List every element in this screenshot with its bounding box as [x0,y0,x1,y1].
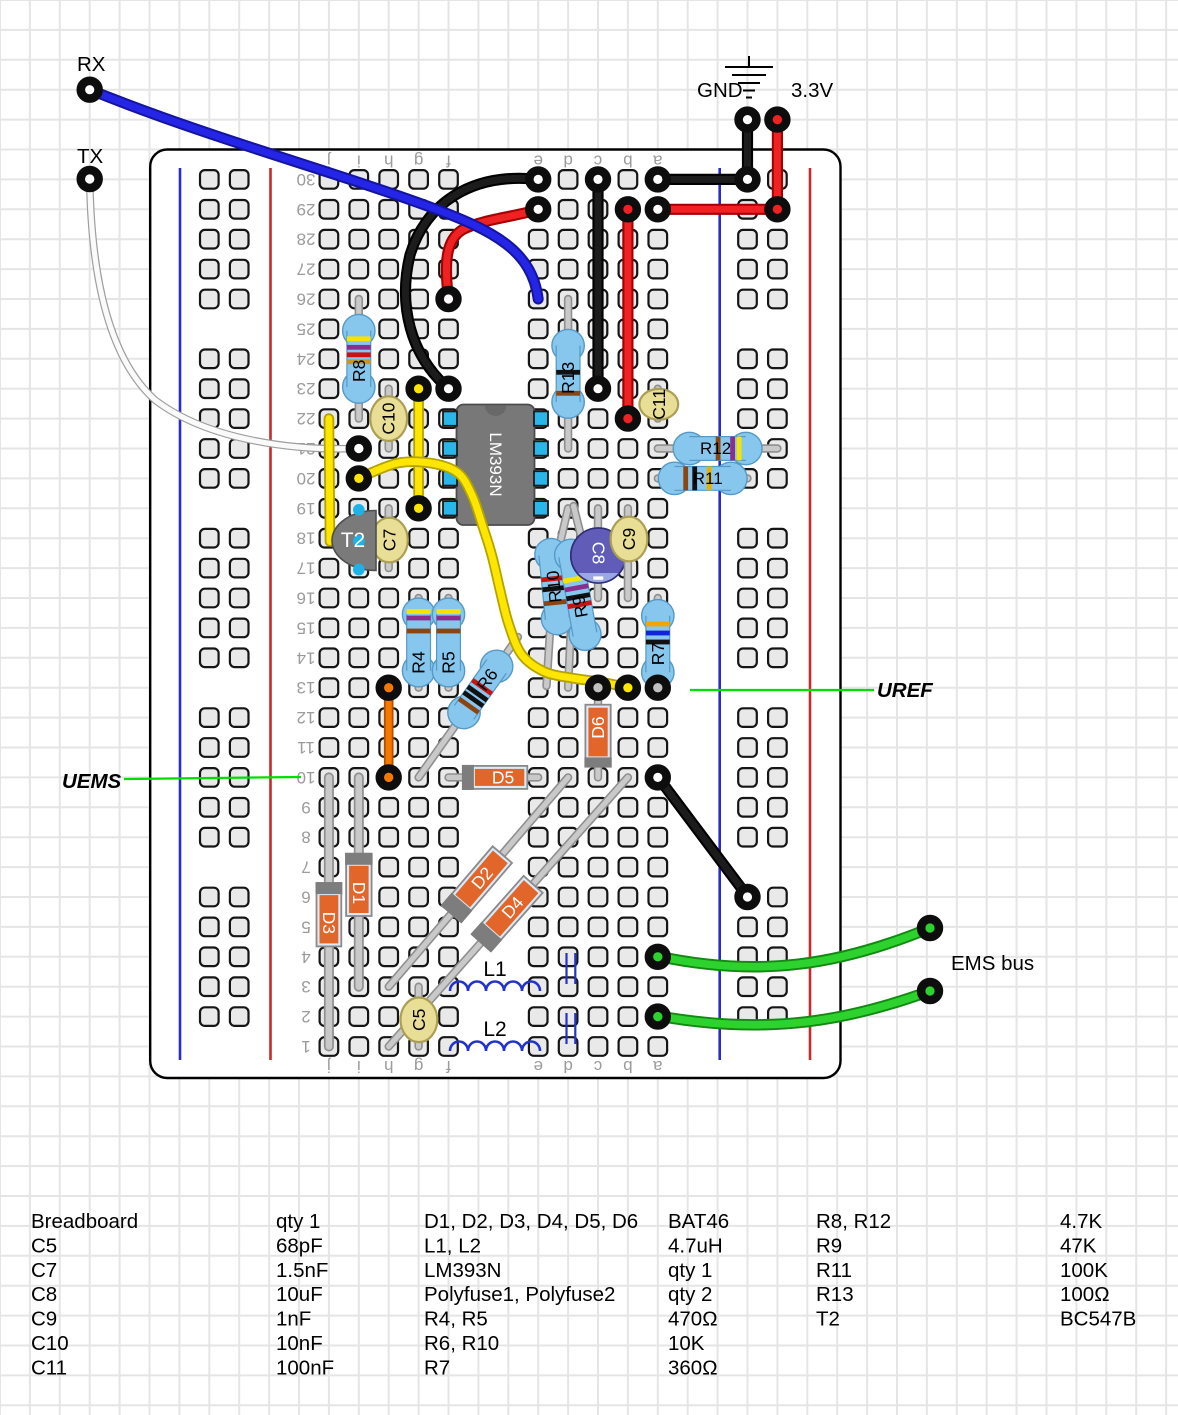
svg-text:L1, L2: L1, L2 [424,1234,481,1257]
svg-text:1nF: 1nF [276,1308,311,1331]
svg-text:R6, R10: R6, R10 [424,1332,499,1355]
svg-text:T2: T2 [816,1308,840,1331]
svg-text:d: d [563,152,572,171]
svg-text:LM393N: LM393N [424,1259,502,1282]
svg-text:10K: 10K [668,1332,705,1355]
svg-text:4.7uH: 4.7uH [668,1234,723,1257]
svg-text:6: 6 [301,888,310,907]
svg-text:20: 20 [297,469,316,488]
svg-text:12: 12 [297,708,316,727]
svg-text:g: g [414,152,423,171]
svg-text:C5: C5 [31,1234,57,1257]
svg-text:R9: R9 [568,594,592,620]
svg-text:BC547B: BC547B [1060,1308,1136,1331]
svg-text:g: g [414,1057,423,1076]
svg-text:23: 23 [297,379,316,398]
svg-text:D6: D6 [588,716,608,738]
svg-text:c: c [593,1057,602,1076]
svg-text:UEMS: UEMS [62,770,122,793]
svg-text:d: d [563,1057,572,1076]
svg-text:L2: L2 [483,1018,506,1041]
svg-text:C7: C7 [379,529,399,551]
svg-text:26: 26 [297,290,316,309]
svg-text:D3: D3 [319,912,339,934]
svg-text:1: 1 [301,1037,310,1056]
svg-text:1.5nF: 1.5nF [276,1259,328,1282]
svg-text:C10: C10 [379,402,399,434]
svg-text:100K: 100K [1060,1259,1108,1282]
svg-text:25: 25 [297,319,316,338]
svg-text:3: 3 [301,977,310,996]
svg-text:100nF: 100nF [276,1356,334,1379]
svg-text:22: 22 [297,409,316,428]
svg-text:C8: C8 [31,1283,57,1306]
svg-text:h: h [384,1057,393,1076]
svg-text:C9: C9 [31,1308,57,1331]
svg-text:b: b [623,152,632,171]
svg-text:4.7K: 4.7K [1060,1210,1102,1233]
svg-text:8: 8 [301,828,310,847]
svg-text:360Ω: 360Ω [668,1356,718,1379]
svg-text:28: 28 [297,230,316,249]
svg-text:UREF: UREF [877,679,933,702]
svg-text:b: b [623,1057,632,1076]
svg-text:R9: R9 [816,1234,842,1257]
svg-text:C11: C11 [649,389,669,420]
svg-text:470Ω: 470Ω [668,1308,718,1331]
svg-text:68pF: 68pF [276,1234,323,1257]
svg-text:BAT46: BAT46 [668,1210,729,1233]
svg-text:TX: TX [77,145,104,168]
svg-text:RX: RX [77,53,106,76]
svg-text:GND: GND [697,79,743,102]
svg-text:D5: D5 [492,767,514,787]
svg-text:13: 13 [297,678,316,697]
svg-text:R11: R11 [816,1259,852,1282]
svg-text:24: 24 [297,349,316,368]
svg-text:C9: C9 [619,528,639,550]
svg-text:Breadboard: Breadboard [31,1210,138,1233]
svg-text:17: 17 [297,559,316,578]
svg-text:2: 2 [301,1007,310,1026]
svg-text:27: 27 [297,260,316,279]
svg-text:10nF: 10nF [276,1332,323,1355]
svg-text:C11: C11 [31,1356,67,1379]
svg-text:Polyfuse1, Polyfuse2: Polyfuse1, Polyfuse2 [424,1283,615,1306]
svg-text:D1, D2, D3, D4, D5, D6: D1, D2, D3, D4, D5, D6 [424,1210,638,1233]
svg-text:qty 1: qty 1 [668,1259,712,1282]
svg-text:R4: R4 [409,651,429,674]
svg-text:11: 11 [297,738,315,757]
svg-text:R4, R5: R4, R5 [424,1308,488,1331]
svg-text:R11: R11 [693,469,723,488]
svg-text:e: e [533,1057,542,1076]
svg-text:R7: R7 [648,643,668,665]
svg-text:R5: R5 [439,651,459,673]
svg-text:10uF: 10uF [276,1283,323,1306]
svg-text:15: 15 [297,618,316,637]
svg-text:a: a [653,1057,663,1076]
svg-text:i: i [357,152,361,171]
svg-text:14: 14 [297,648,316,667]
svg-text:L1: L1 [483,958,506,981]
svg-text:4: 4 [301,947,310,966]
svg-text:16: 16 [297,589,316,608]
svg-text:qty 1: qty 1 [276,1210,320,1233]
svg-text:C8: C8 [588,542,608,564]
svg-text:3.3V: 3.3V [791,79,833,102]
svg-text:18: 18 [297,529,316,548]
svg-text:R12: R12 [700,439,731,458]
svg-text:T2: T2 [341,529,366,552]
svg-text:j: j [327,1057,332,1076]
svg-text:f: f [446,1057,451,1076]
svg-text:LM393N: LM393N [486,432,505,496]
svg-text:C5: C5 [409,1009,429,1031]
svg-text:100Ω: 100Ω [1060,1283,1110,1306]
svg-text:19: 19 [297,499,316,518]
svg-text:R13: R13 [558,362,578,394]
svg-text:47K: 47K [1060,1234,1097,1257]
svg-text:i: i [357,1057,361,1076]
svg-text:R13: R13 [816,1283,854,1306]
svg-text:C7: C7 [31,1259,57,1282]
svg-text:D1: D1 [349,882,369,904]
svg-text:R7: R7 [424,1356,450,1379]
svg-text:R8: R8 [349,360,369,382]
svg-text:R8, R12: R8, R12 [816,1210,891,1233]
svg-text:h: h [384,152,393,171]
svg-text:EMS bus: EMS bus [951,952,1034,975]
svg-text:5: 5 [301,917,310,936]
svg-text:C10: C10 [31,1332,69,1355]
svg-text:29: 29 [297,200,316,219]
svg-text:f: f [446,152,451,171]
svg-text:9: 9 [301,798,310,817]
svg-text:7: 7 [301,858,310,877]
svg-text:qty 2: qty 2 [668,1283,712,1306]
